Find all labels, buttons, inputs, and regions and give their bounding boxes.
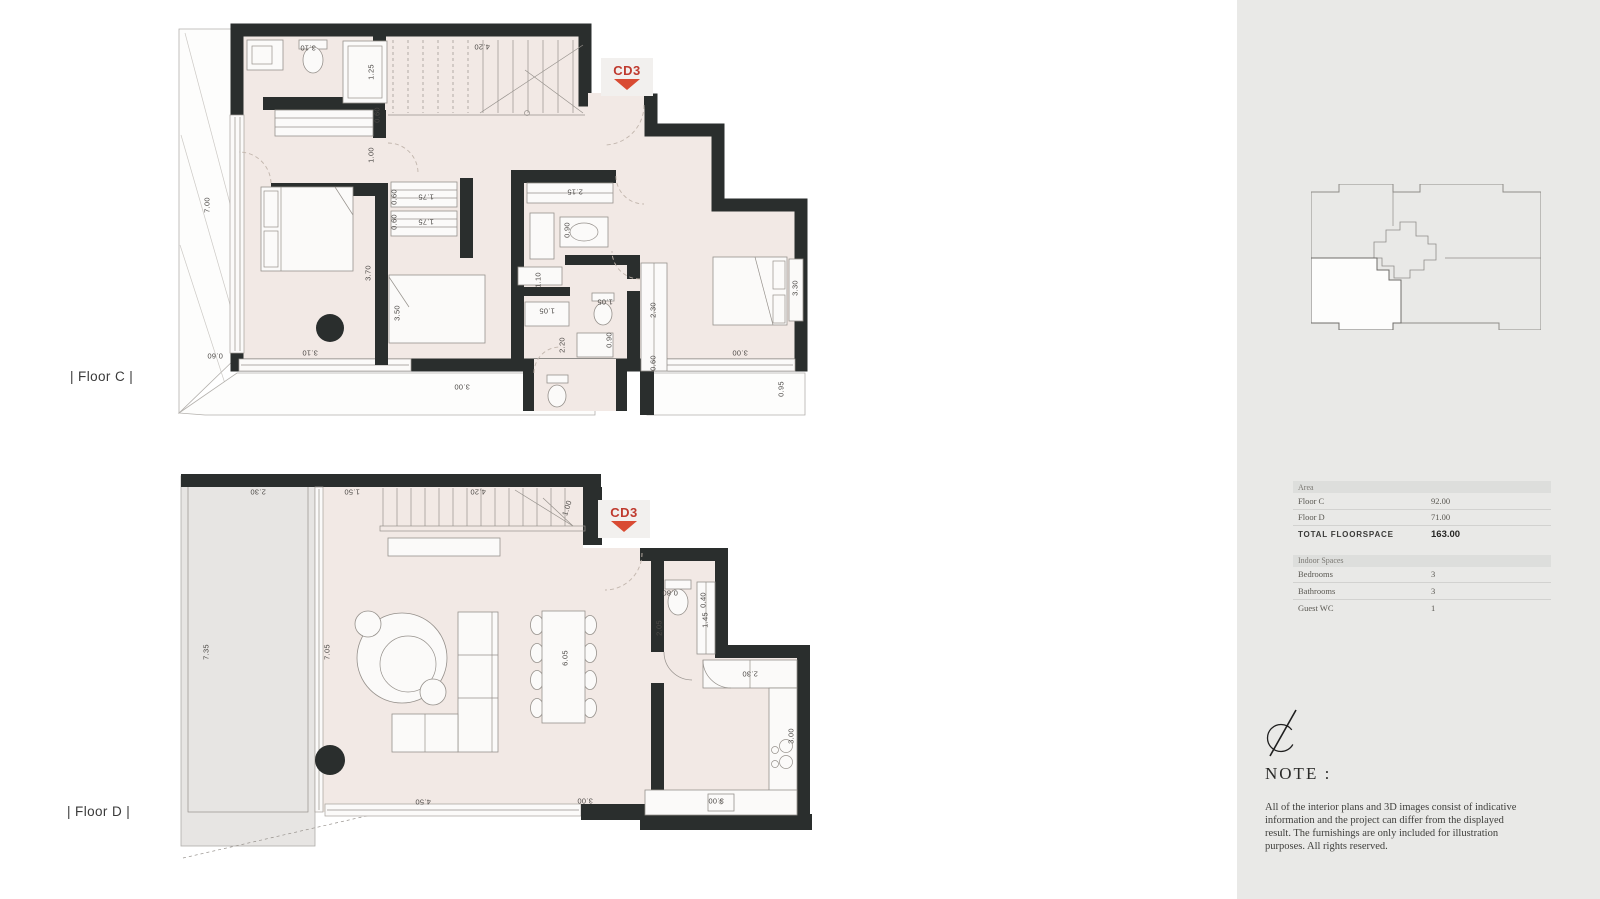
row-label: Bedrooms: [1298, 569, 1333, 579]
dimension-label: 1.75: [418, 218, 434, 227]
dimension-label: 6.05: [561, 650, 570, 666]
dimension-label: 1.05: [597, 298, 613, 307]
dimension-label: 3.00: [732, 349, 748, 358]
dimension-label: 0.80: [662, 589, 678, 598]
row-label: Bathrooms: [1298, 586, 1335, 596]
cd3-arrow-icon: [611, 521, 637, 532]
row-value: 3: [1431, 586, 1435, 596]
row-value: 92.00: [1431, 496, 1450, 506]
dimension-label: 0.60: [207, 352, 223, 361]
dimension-label: 3.50: [393, 305, 402, 321]
dimension-label: 0.60: [390, 189, 399, 205]
dimension-label: 2.30: [250, 488, 266, 497]
dimension-label: 3.10: [302, 349, 318, 358]
row-label: TOTAL FLOORSPACE: [1298, 530, 1394, 539]
dimension-label: 7.35: [202, 644, 211, 660]
note-title: NOTE :: [1265, 764, 1331, 784]
row-label: Floor D: [1298, 512, 1325, 522]
dimension-label: 1.45: [701, 612, 710, 628]
dimension-label: 0.60: [649, 355, 658, 371]
cd3-arrow-icon: [614, 79, 640, 90]
dimension-label: 1.00: [367, 147, 376, 163]
dimension-label: 0.90: [563, 222, 572, 238]
dimension-label: 4.20: [474, 43, 490, 52]
dimension-label: 4.50: [415, 798, 431, 807]
dimension-label: 1.75: [418, 193, 434, 202]
row-label: Guest WC: [1298, 603, 1334, 613]
dimension-label: 2.05: [655, 620, 664, 636]
dimension-label: 2.20: [558, 337, 567, 353]
section-marker-cd3-floor-d: CD3: [598, 500, 650, 538]
floor-c-plan: 3.101.254.200.601.007.000.601.750.601.75…: [175, 15, 820, 420]
dimension-label: 7.05: [323, 644, 332, 660]
row-value: 3: [1431, 569, 1435, 579]
key-plan: [1311, 184, 1541, 330]
table-row-bathrooms: Bathrooms 3: [1293, 583, 1551, 600]
table-row-guest-wc: Guest WC 1: [1293, 600, 1551, 617]
spaces-table-header: Indoor Spaces: [1293, 555, 1551, 567]
dimension-label: 2.15: [567, 188, 583, 197]
dimension-label: 2.30: [649, 302, 658, 318]
floor-d-label: | Floor D |: [67, 804, 130, 819]
dimension-label: 3.10: [300, 44, 316, 53]
dimension-label: 1.10: [534, 272, 543, 288]
table-row-bedrooms: Bedrooms 3: [1293, 567, 1551, 584]
dimension-label: 1.05: [539, 307, 555, 316]
dimension-label: 0.40: [699, 592, 708, 608]
dimension-label: 3.30: [791, 280, 800, 296]
dimension-label: 7.00: [203, 197, 212, 213]
key-plan-highlighted-unit: [1311, 258, 1401, 330]
page-canvas: | Floor C | | Floor D |: [0, 0, 1600, 899]
brand-logo-icon: [1262, 706, 1306, 760]
dimension-label: 0.60: [390, 214, 399, 230]
area-table-header: Area: [1293, 481, 1551, 493]
dimension-label: 3.00: [577, 797, 593, 806]
table-row-total-floorspace: TOTAL FLOORSPACE 163.00: [1293, 526, 1551, 543]
dimension-label: 4.20: [470, 488, 486, 497]
note-body: All of the interior plans and 3D images …: [1265, 801, 1523, 853]
cd3-label: CD3: [610, 506, 638, 519]
cd3-label: CD3: [613, 64, 641, 77]
floor-c-label: | Floor C |: [70, 369, 133, 384]
dimension-label: 0.60: [373, 107, 382, 123]
table-row-floor-c: Floor C 92.00: [1293, 493, 1551, 510]
dimension-label: 3.00: [454, 383, 470, 392]
dimension-label: 3.00: [787, 728, 796, 744]
dimension-label: 1.50: [344, 488, 360, 497]
dimension-label: 0.95: [777, 381, 786, 397]
section-marker-cd3-floor-c: CD3: [601, 58, 653, 96]
dimension-label: 3.70: [364, 265, 373, 281]
info-sidebar: Area Floor C 92.00 Floor D 71.00 TOTAL F…: [1237, 0, 1600, 899]
row-value: 1: [1431, 603, 1435, 613]
floor-d-plan: 2.301.504.201.007.357.056.050.800.401.45…: [175, 460, 820, 865]
table-row-floor-d: Floor D 71.00: [1293, 510, 1551, 527]
dimension-label: 0.90: [605, 332, 614, 348]
dimension-label: 2.30: [742, 670, 758, 679]
row-label: Floor C: [1298, 496, 1324, 506]
dimension-label: 3.00: [708, 797, 724, 806]
dimension-label: 1.25: [367, 64, 376, 80]
row-value: 163.00: [1431, 529, 1460, 540]
area-table: Area Floor C 92.00 Floor D 71.00 TOTAL F…: [1293, 481, 1551, 616]
row-value: 71.00: [1431, 512, 1450, 522]
